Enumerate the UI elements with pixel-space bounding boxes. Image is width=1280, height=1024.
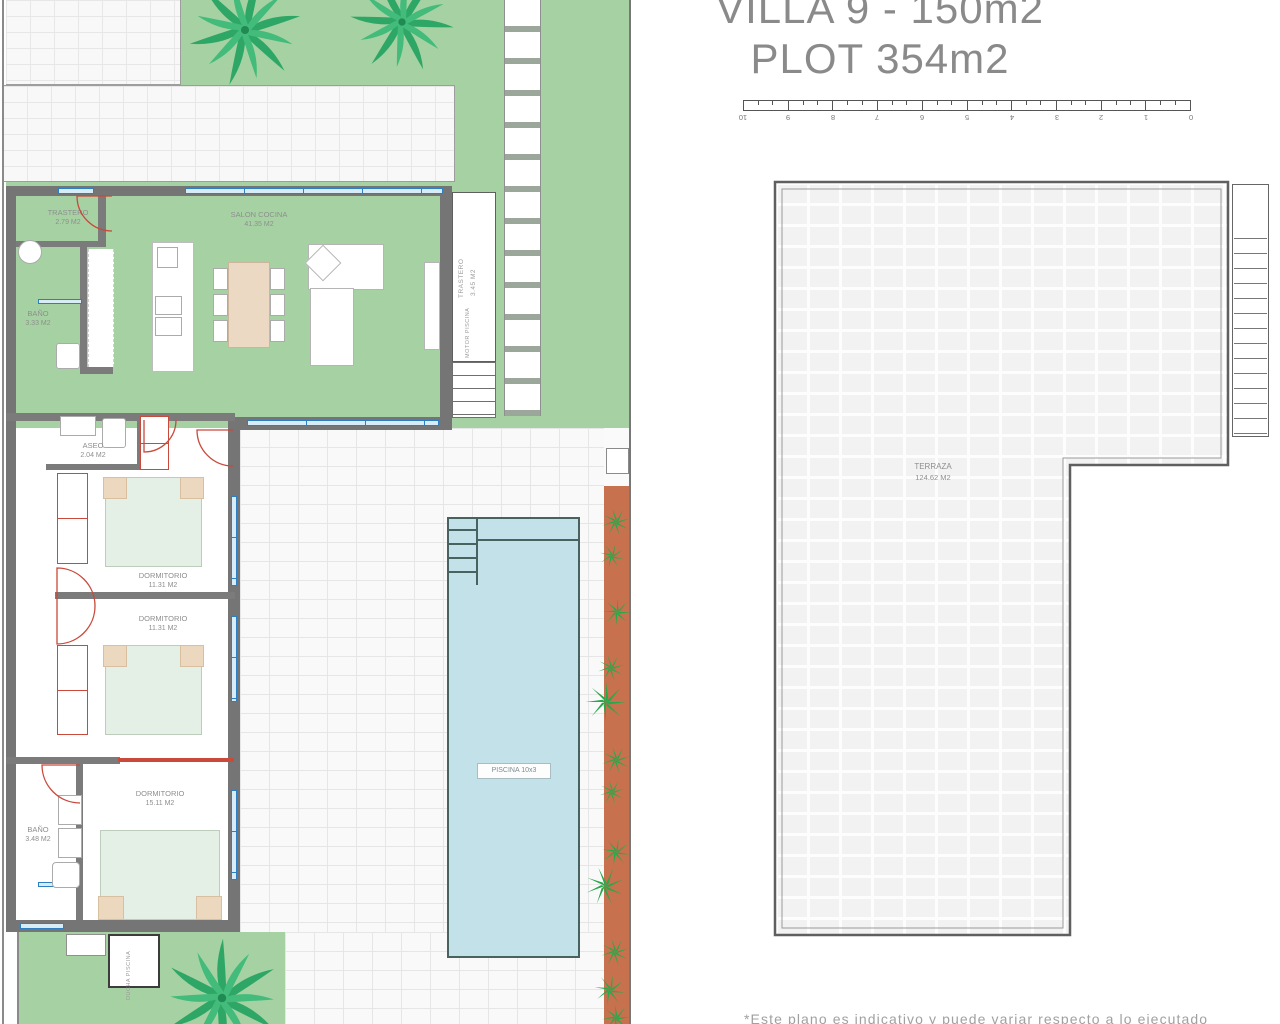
terrace-plan-area (775, 182, 1228, 935)
wardrobe-dorm2 (57, 645, 88, 735)
toilet-bath1 (56, 343, 80, 369)
room-name: DORMITORIO (139, 571, 188, 580)
patio-top-left (6, 0, 181, 85)
hall-closet (88, 249, 114, 367)
room-name: TRASTERO (48, 208, 89, 217)
nightstand (103, 645, 127, 667)
window-salon-south (247, 420, 439, 426)
window-dorm1 (231, 496, 237, 586)
nightstand (98, 896, 124, 920)
plan-title: VILLA 9 - 150m2 PLOT 354m2 (700, 0, 1060, 84)
vanity-bath2 (58, 795, 82, 825)
kitchen-hob (155, 317, 182, 336)
scale-bar (743, 100, 1191, 111)
wardrobe-aseo (140, 416, 169, 470)
washbasin-aseo (60, 416, 96, 436)
dining-chair (213, 294, 228, 316)
room-name: DORMITORIO (139, 614, 188, 623)
plot-boundary-right (629, 0, 631, 1024)
room-label-dorm3: DORMITORIO 15.11 M2 (110, 789, 210, 808)
planter-strip (604, 486, 629, 1024)
window-dorm3 (231, 790, 237, 880)
wall-right-salon (440, 186, 452, 430)
dining-table (228, 262, 270, 348)
room-label-bano-top: BAÑO 3.33 M2 (0, 309, 76, 328)
floor-plan-page: TRASTERO 2.79 M2 SALON COCINA 41.35 M2 B… (0, 0, 1280, 1024)
terrace-stairs-treads (1234, 224, 1267, 435)
room-name: BAÑO (27, 309, 48, 318)
wall-aseo-bottom (46, 464, 144, 470)
dining-chair (213, 320, 228, 342)
plot-boundary-bottom-left (17, 932, 19, 1024)
sliding-door-dorm3 (118, 758, 234, 762)
window-bath-top (58, 188, 94, 194)
kitchen-sink (157, 247, 178, 268)
driveway (2, 85, 455, 182)
wall-dorm2-dorm3 (6, 757, 120, 764)
disclaimer-text: *Este plano es indicativo y puede variar… (744, 1011, 1264, 1024)
nightstand (103, 477, 127, 499)
room-name: SALON COCINA (231, 210, 288, 219)
pool-label: PISCINA 10x3 (477, 763, 551, 779)
wall-dorm1-dorm2 (55, 592, 235, 599)
dining-chair (270, 320, 285, 342)
wardrobe-dorm1 (57, 473, 88, 564)
nightstand (196, 896, 222, 920)
scale-bar-numbers: 10 9 8 7 6 5 4 3 2 1 0 (738, 113, 1196, 122)
room-area: 2.04 M2 (53, 451, 133, 461)
terrace-label: TERRAZA 124.62 M2 (873, 461, 993, 483)
room-label-trastero-side: TRASTERO (458, 218, 465, 298)
stepping-stones-path (504, 0, 541, 416)
room-area: 41.35 M2 (209, 220, 309, 230)
washbasin-bath1 (18, 240, 42, 264)
dining-chair (270, 268, 285, 290)
room-label-salon: SALON COCINA 41.35 M2 (209, 210, 309, 229)
tv-unit (424, 262, 440, 350)
room-name: BAÑO (27, 825, 48, 834)
pool-lane-line (476, 539, 578, 541)
pool-steps (447, 517, 478, 585)
side-gate (606, 448, 629, 474)
room-area: 11.31 M2 (113, 624, 213, 634)
room-label-aseo: ASEO 2.04 M2 (53, 441, 133, 460)
room-label-dorm1: DORMITORIO 11.31 M2 (113, 571, 213, 590)
window-bath2-bottom (20, 923, 64, 929)
sofa-side (310, 288, 354, 366)
dining-chair (270, 294, 285, 316)
room-name: ASEO (83, 441, 104, 450)
room-area: 15.11 M2 (110, 799, 210, 809)
window-salon-top (185, 188, 443, 194)
dining-chair (213, 268, 228, 290)
room-area: 3.48 M2 (0, 835, 76, 845)
room-label-dorm2: DORMITORIO 11.31 M2 (113, 614, 213, 633)
window-dorm2 (231, 616, 237, 702)
wall-closet-bottom (80, 367, 113, 374)
room-area: 2.79 M2 (28, 218, 108, 228)
pool-shower-box (108, 934, 160, 988)
room-area: 124.62 M2 (873, 472, 993, 483)
label-ducha-piscina: DUCHA PISCINA (126, 938, 132, 1000)
wall-left (6, 186, 16, 932)
label-motor-piscina: MOTOR PISCINA (465, 300, 471, 358)
plan-title-line2: PLOT 354m2 (700, 34, 1060, 84)
shower-screen-bath1 (38, 299, 82, 304)
kitchen-oven (155, 296, 182, 315)
plan-title-line1: VILLA 9 - 150m2 (700, 0, 1060, 34)
room-area: 11.31 M2 (113, 581, 213, 591)
entry-steps (452, 362, 496, 418)
nightstand (180, 645, 204, 667)
room-label-trastero-side-area: 3.45 M2 (470, 226, 477, 296)
room-name: DORMITORIO (136, 789, 185, 798)
toilet-bath2 (52, 862, 80, 888)
nightstand (180, 477, 204, 499)
room-name: TERRAZA (914, 462, 951, 471)
garden-box (66, 934, 106, 956)
room-label-trastero-top: TRASTERO 2.79 M2 (28, 208, 108, 227)
room-label-bano-bottom: BAÑO 3.48 M2 (0, 825, 76, 844)
room-area: 3.33 M2 (0, 319, 76, 329)
wall-bath-right (80, 247, 87, 374)
plot-boundary-left (2, 0, 4, 1024)
